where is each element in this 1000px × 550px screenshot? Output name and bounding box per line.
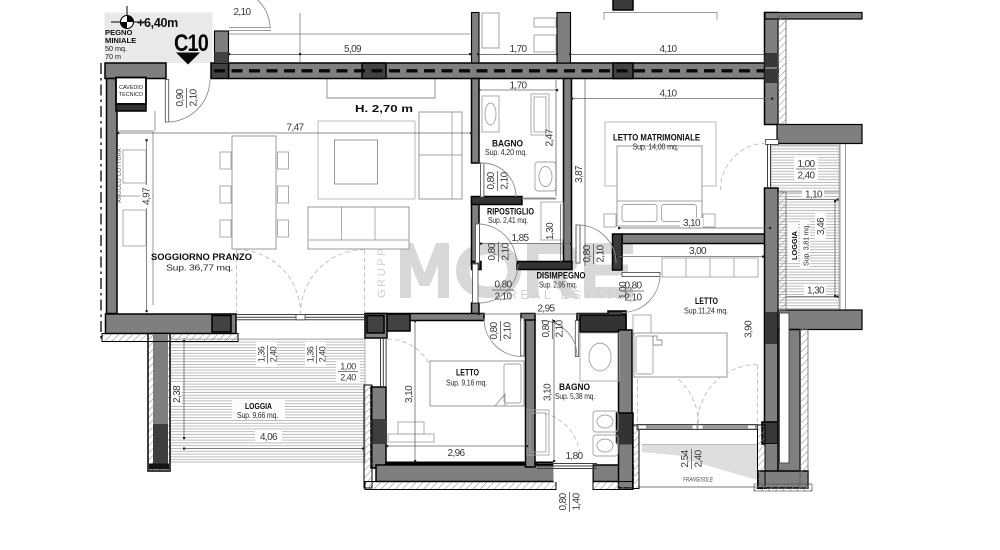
svg-text:3,87: 3,87 [574, 165, 585, 183]
svg-text:Sup. 5,38 mq.: Sup. 5,38 mq. [555, 392, 595, 401]
svg-text:Sup. 9,16 mq.: Sup. 9,16 mq. [446, 379, 487, 388]
svg-text:1,40: 1,40 [572, 492, 583, 510]
svg-text:TECNICO: TECNICO [119, 92, 143, 98]
svg-text:CAVEDIO: CAVEDIO [119, 85, 143, 91]
svg-text:4,10: 4,10 [659, 89, 677, 100]
svg-text:2,10: 2,10 [596, 244, 607, 262]
svg-text:1,70: 1,70 [509, 44, 527, 55]
svg-text:0,80: 0,80 [582, 244, 593, 262]
svg-text:1,80: 1,80 [565, 451, 583, 462]
svg-text:Sup. 2,95 mq.: Sup. 2,95 mq. [539, 281, 577, 290]
svg-text:+6,40m: +6,40m [137, 16, 178, 30]
svg-text:1,36: 1,36 [306, 346, 316, 362]
svg-text:1,00: 1,00 [797, 159, 815, 170]
svg-text:2,40: 2,40 [797, 171, 815, 182]
svg-text:0,80: 0,80 [494, 280, 512, 291]
svg-text:0,80: 0,80 [558, 492, 569, 510]
svg-text:2,10: 2,10 [501, 242, 512, 260]
svg-text:0,80: 0,80 [486, 171, 497, 189]
svg-text:3,46: 3,46 [816, 217, 827, 235]
svg-text:Sup. 2,41 mq.: Sup. 2,41 mq. [488, 216, 528, 225]
svg-text:0,80: 0,80 [489, 321, 500, 339]
svg-text:2,54: 2,54 [680, 449, 691, 467]
svg-text:LETTO MATRIMONIALE: LETTO MATRIMONIALE [613, 133, 700, 143]
svg-text:2,40: 2,40 [340, 373, 356, 383]
svg-text:1,70: 1,70 [509, 81, 527, 92]
svg-text:0,80: 0,80 [541, 319, 552, 337]
svg-text:2,10: 2,10 [503, 321, 514, 339]
svg-text:Sup. 36,77 mq.: Sup. 36,77 mq. [166, 264, 233, 273]
svg-text:2,10: 2,10 [494, 292, 512, 303]
svg-text:LOGGIA: LOGGIA [245, 401, 272, 411]
svg-text:2,10: 2,10 [624, 293, 642, 304]
svg-text:2,40: 2,40 [694, 449, 705, 467]
svg-text:1,30: 1,30 [807, 286, 825, 297]
svg-text:4,10: 4,10 [659, 44, 677, 55]
svg-text:3,90: 3,90 [744, 320, 755, 338]
svg-text:3,10: 3,10 [683, 218, 701, 229]
svg-text:LETTO: LETTO [695, 296, 718, 306]
svg-text:ANGOLO COTTURA: ANGOLO COTTURA [117, 148, 123, 203]
svg-text:2,40: 2,40 [318, 346, 328, 362]
svg-text:0,90: 0,90 [175, 88, 186, 106]
svg-text:FRANGISOLE: FRANGISOLE [683, 477, 713, 484]
svg-text:2,10: 2,10 [189, 88, 200, 106]
svg-text:Sup. 3,81 mq.: Sup. 3,81 mq. [804, 224, 811, 266]
svg-text:5,09: 5,09 [344, 44, 362, 55]
svg-text:3,00: 3,00 [689, 246, 707, 257]
svg-text:70 m: 70 m [105, 52, 121, 61]
svg-text:2,38: 2,38 [172, 385, 183, 403]
svg-text:LETTO: LETTO [456, 368, 479, 378]
svg-text:LOGGIA: LOGGIA [790, 230, 799, 260]
svg-text:1,36: 1,36 [257, 346, 267, 362]
svg-text:1,85: 1,85 [511, 233, 529, 244]
svg-text:3,10: 3,10 [543, 383, 554, 401]
svg-text:BAGNO: BAGNO [492, 139, 523, 149]
svg-text:0,80: 0,80 [624, 281, 642, 292]
svg-text:2,95: 2,95 [537, 304, 555, 315]
svg-text:BAGNO: BAGNO [559, 382, 590, 392]
svg-text:2,10: 2,10 [233, 7, 251, 18]
svg-text:2,10: 2,10 [555, 319, 566, 337]
svg-text:REAL ESTATE: REAL ESTATE [508, 288, 628, 302]
svg-text:4,06: 4,06 [260, 432, 278, 443]
svg-text:2,10: 2,10 [500, 171, 511, 189]
svg-text:1,10: 1,10 [805, 190, 823, 201]
svg-text:2,40: 2,40 [269, 346, 279, 362]
svg-text:Sup. 4,20 mq.: Sup. 4,20 mq. [485, 148, 527, 157]
svg-text:RIPOSTIGLIO: RIPOSTIGLIO [487, 207, 534, 217]
svg-text:SOGGIORNO PRANZO: SOGGIORNO PRANZO [151, 252, 252, 262]
svg-text:1,00: 1,00 [340, 362, 356, 372]
svg-text:Sup. 14,00 mq.: Sup. 14,00 mq. [633, 143, 679, 152]
svg-text:2,47: 2,47 [545, 128, 556, 146]
svg-text:3,10: 3,10 [404, 385, 415, 403]
svg-text:1,30: 1,30 [545, 222, 556, 240]
svg-text:Sup.11,24 mq.: Sup.11,24 mq. [684, 307, 728, 316]
svg-text:7,47: 7,47 [286, 123, 304, 134]
svg-text:Sup. 9,66 mq.: Sup. 9,66 mq. [237, 411, 278, 420]
svg-text:4,97: 4,97 [142, 187, 153, 205]
svg-text:H. 2,70 m: H. 2,70 m [355, 104, 413, 115]
svg-text:2,96: 2,96 [447, 448, 465, 459]
svg-text:0,80: 0,80 [487, 242, 498, 260]
